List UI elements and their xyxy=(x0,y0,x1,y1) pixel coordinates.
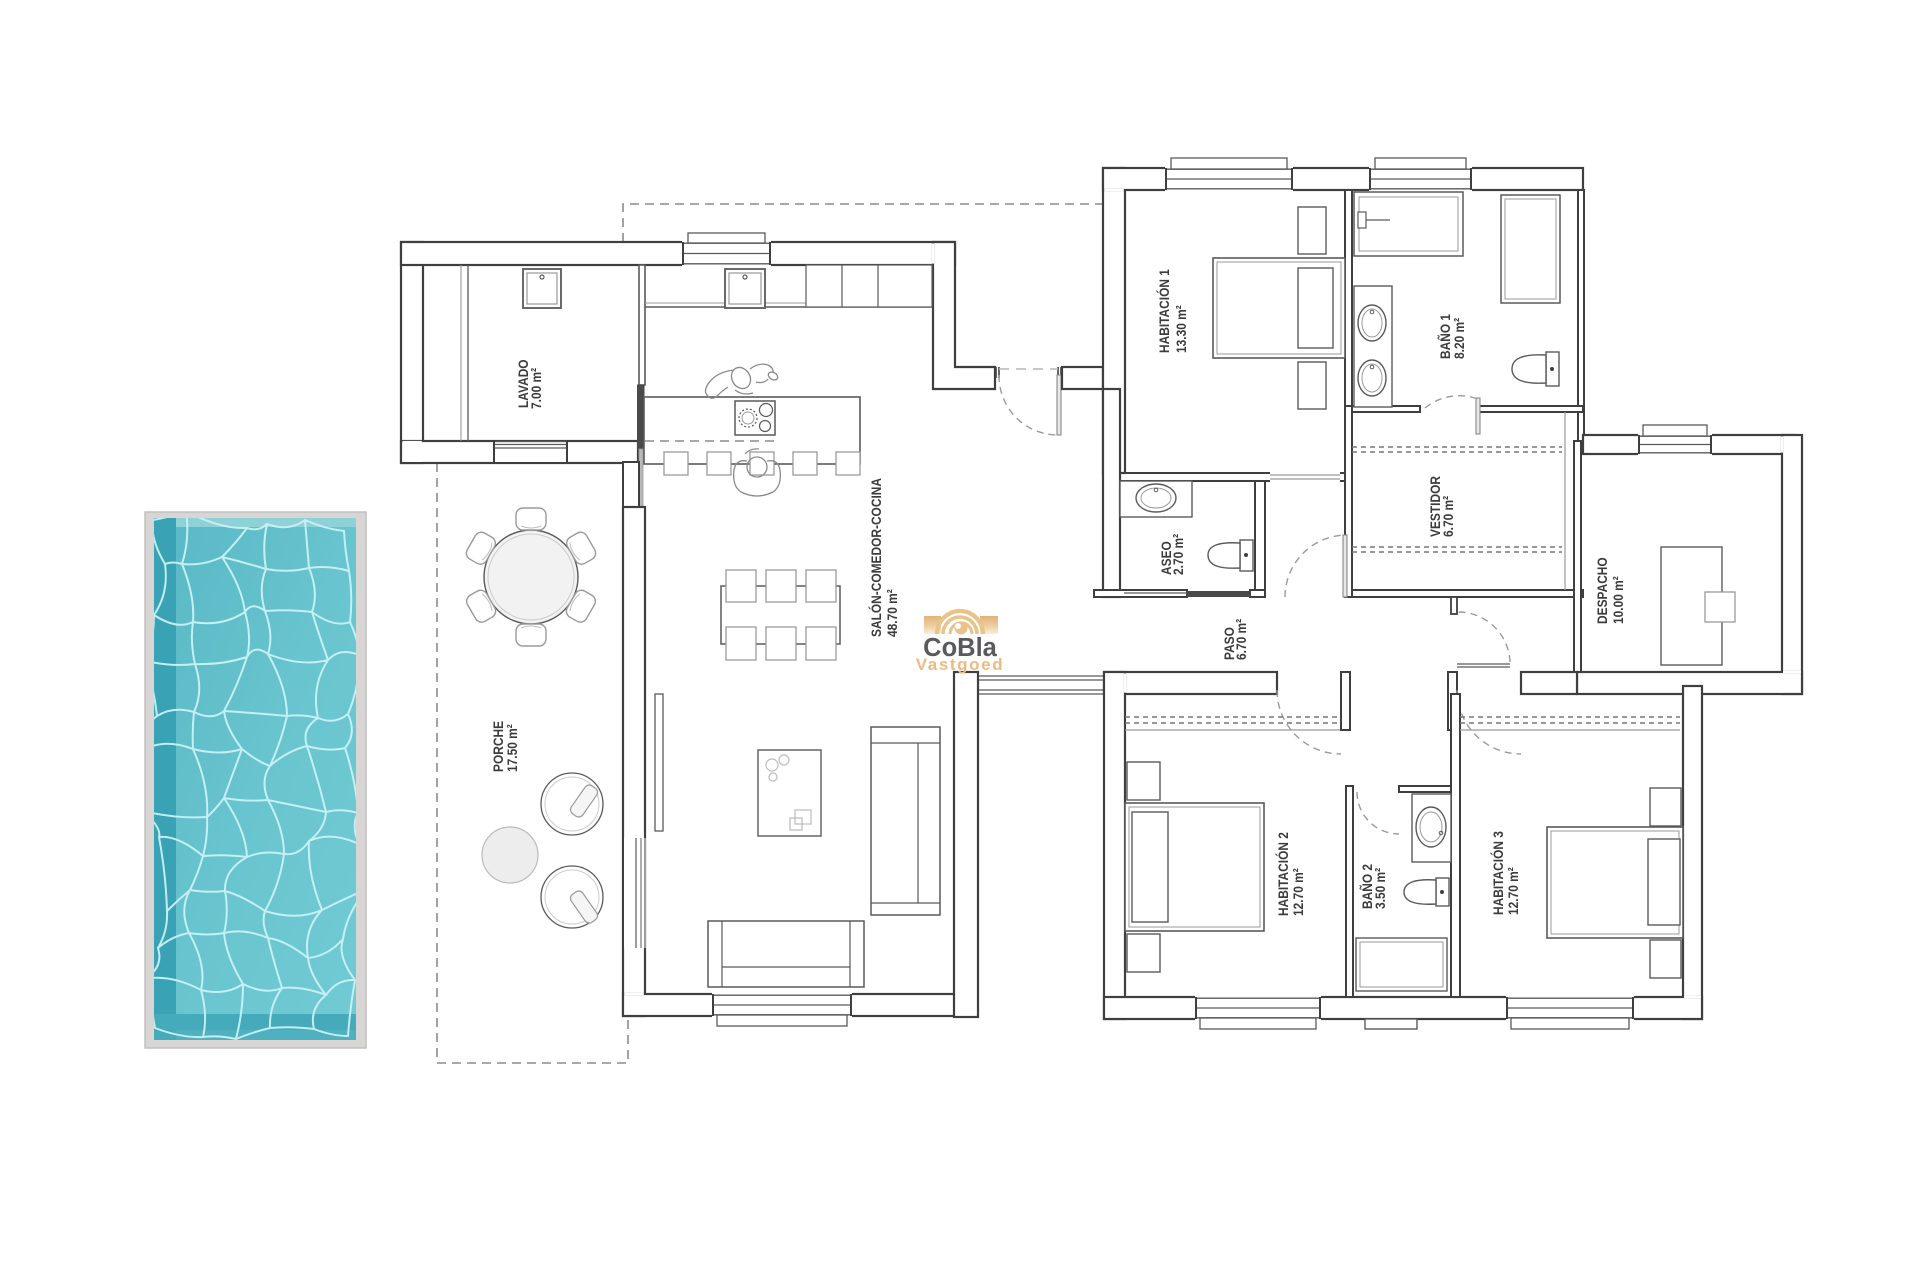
svg-text:2.70 m²: 2.70 m² xyxy=(1170,533,1186,575)
svg-text:6.70 m²: 6.70 m² xyxy=(1440,495,1456,537)
svg-text:HABITACIÓN 1: HABITACIÓN 1 xyxy=(1156,269,1172,353)
svg-text:HABITACIÓN 2: HABITACIÓN 2 xyxy=(1275,832,1291,916)
svg-text:DESPACHO: DESPACHO xyxy=(1594,557,1610,624)
svg-text:Vastgoed: Vastgoed xyxy=(916,655,1004,674)
svg-text:HABITACIÓN 3: HABITACIÓN 3 xyxy=(1490,831,1506,915)
svg-text:8.20 m²: 8.20 m² xyxy=(1451,317,1467,359)
svg-text:10.00 m²: 10.00 m² xyxy=(1610,576,1626,624)
svg-text:3.50 m²: 3.50 m² xyxy=(1372,867,1388,909)
svg-text:13.30 m²: 13.30 m² xyxy=(1173,305,1189,353)
svg-text:6.70 m²: 6.70 m² xyxy=(1233,618,1249,660)
svg-text:12.70 m²: 12.70 m² xyxy=(1290,868,1306,916)
svg-text:48.70 m²: 48.70 m² xyxy=(884,589,900,637)
svg-text:SALÓN-COMEDOR-COCINA: SALÓN-COMEDOR-COCINA xyxy=(868,478,884,637)
svg-text:7.00 m²: 7.00 m² xyxy=(528,367,544,409)
svg-text:17.50 m²: 17.50 m² xyxy=(504,724,520,772)
svg-text:12.70 m²: 12.70 m² xyxy=(1505,867,1521,915)
